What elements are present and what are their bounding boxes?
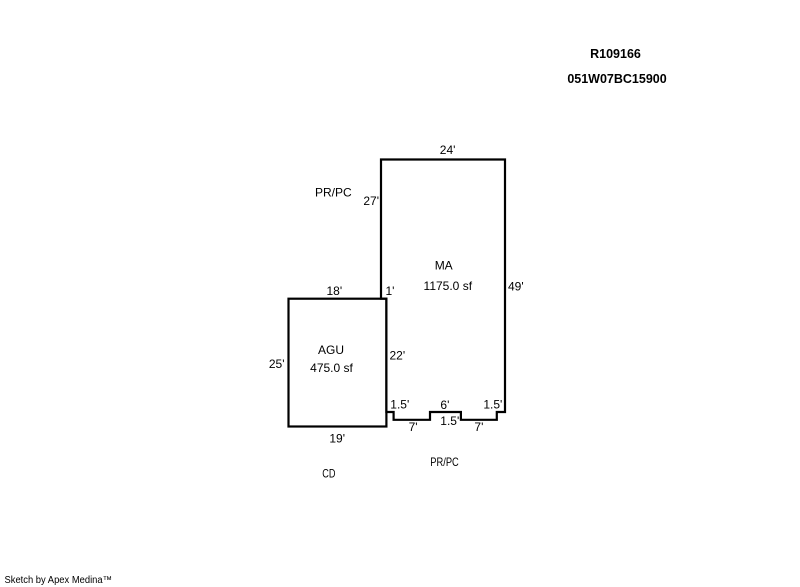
svg-text:22': 22' xyxy=(390,348,406,362)
svg-text:MA: MA xyxy=(435,259,453,273)
svg-text:475.0 sf: 475.0 sf xyxy=(310,361,353,375)
svg-text:1175.0 sf: 1175.0 sf xyxy=(424,279,473,293)
svg-text:27': 27' xyxy=(363,194,379,208)
svg-text:18': 18' xyxy=(326,284,342,298)
svg-text:1.5': 1.5' xyxy=(483,397,502,411)
svg-text:AGU: AGU xyxy=(318,343,344,357)
svg-text:7': 7' xyxy=(474,420,483,434)
svg-text:PR/PC: PR/PC xyxy=(430,455,459,469)
svg-text:1.5': 1.5' xyxy=(390,397,409,411)
svg-text:1': 1' xyxy=(386,284,395,298)
svg-text:R109166: R109166 xyxy=(590,47,641,61)
svg-text:24': 24' xyxy=(440,143,456,157)
svg-text:Sketch by Apex Medina™: Sketch by Apex Medina™ xyxy=(5,575,113,586)
svg-text:PR/PC: PR/PC xyxy=(315,186,352,200)
svg-text:051W07BC15900: 051W07BC15900 xyxy=(567,72,666,86)
svg-text:19': 19' xyxy=(329,431,345,445)
svg-text:25': 25' xyxy=(269,357,285,371)
svg-text:1.5': 1.5' xyxy=(440,414,459,428)
svg-text:7': 7' xyxy=(409,420,418,434)
svg-text:49': 49' xyxy=(508,280,524,294)
svg-text:6': 6' xyxy=(440,398,449,412)
svg-text:CD: CD xyxy=(322,469,335,481)
